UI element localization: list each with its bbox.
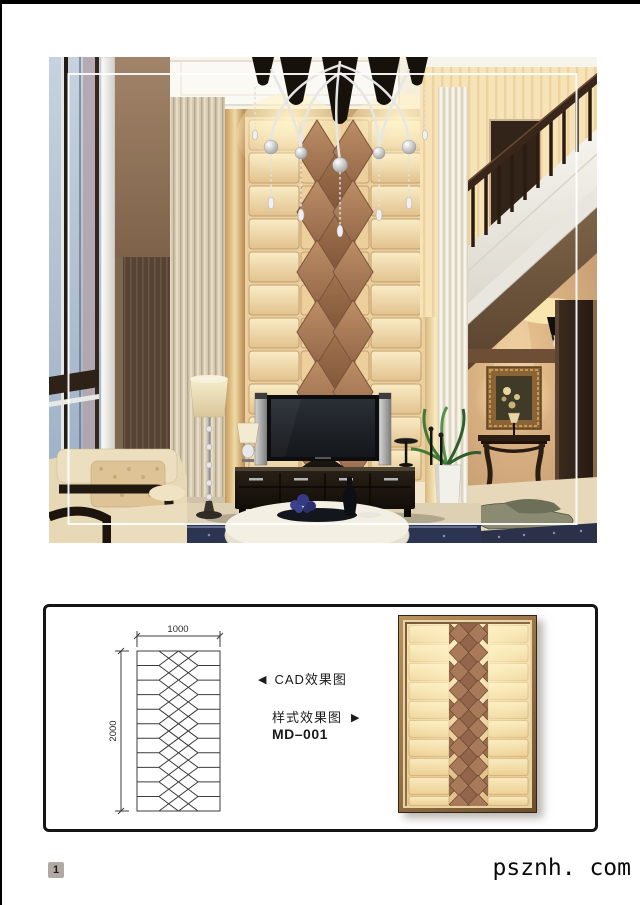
page-border-left <box>0 0 2 905</box>
sofa <box>49 449 187 543</box>
interior-photo <box>49 57 597 543</box>
frame-inner-band <box>405 622 530 806</box>
cad-drawing: 1000 2000 <box>63 617 243 822</box>
page-number: 1 <box>48 862 64 878</box>
page-border-top <box>0 0 640 4</box>
sample-image-frame <box>398 615 537 813</box>
style-render-label: 样式效果图▶ <box>272 707 360 726</box>
tv <box>255 393 391 469</box>
catalog-page: { "page": { "number": "1", "watermark": … <box>0 0 640 905</box>
dim-width-label: 1000 <box>167 624 188 635</box>
spec-panel: 1000 2000 ◀CAD效果图 样式效果图▶ MD–001 <box>43 604 598 832</box>
sample-panel-render <box>407 624 530 806</box>
dim-height-label: 2000 <box>108 720 119 741</box>
right-arrow-icon: ▶ <box>351 712 360 724</box>
window <box>49 57 115 497</box>
left-arrow-icon: ◀ <box>258 674 267 686</box>
watermark: psznh. com <box>493 855 631 881</box>
cad-render-label: ◀CAD效果图 <box>258 669 347 688</box>
model-code: MD–001 <box>272 726 328 742</box>
frame-inner-lip <box>403 620 532 808</box>
fluted-panel <box>170 97 225 509</box>
curtain <box>115 57 170 507</box>
